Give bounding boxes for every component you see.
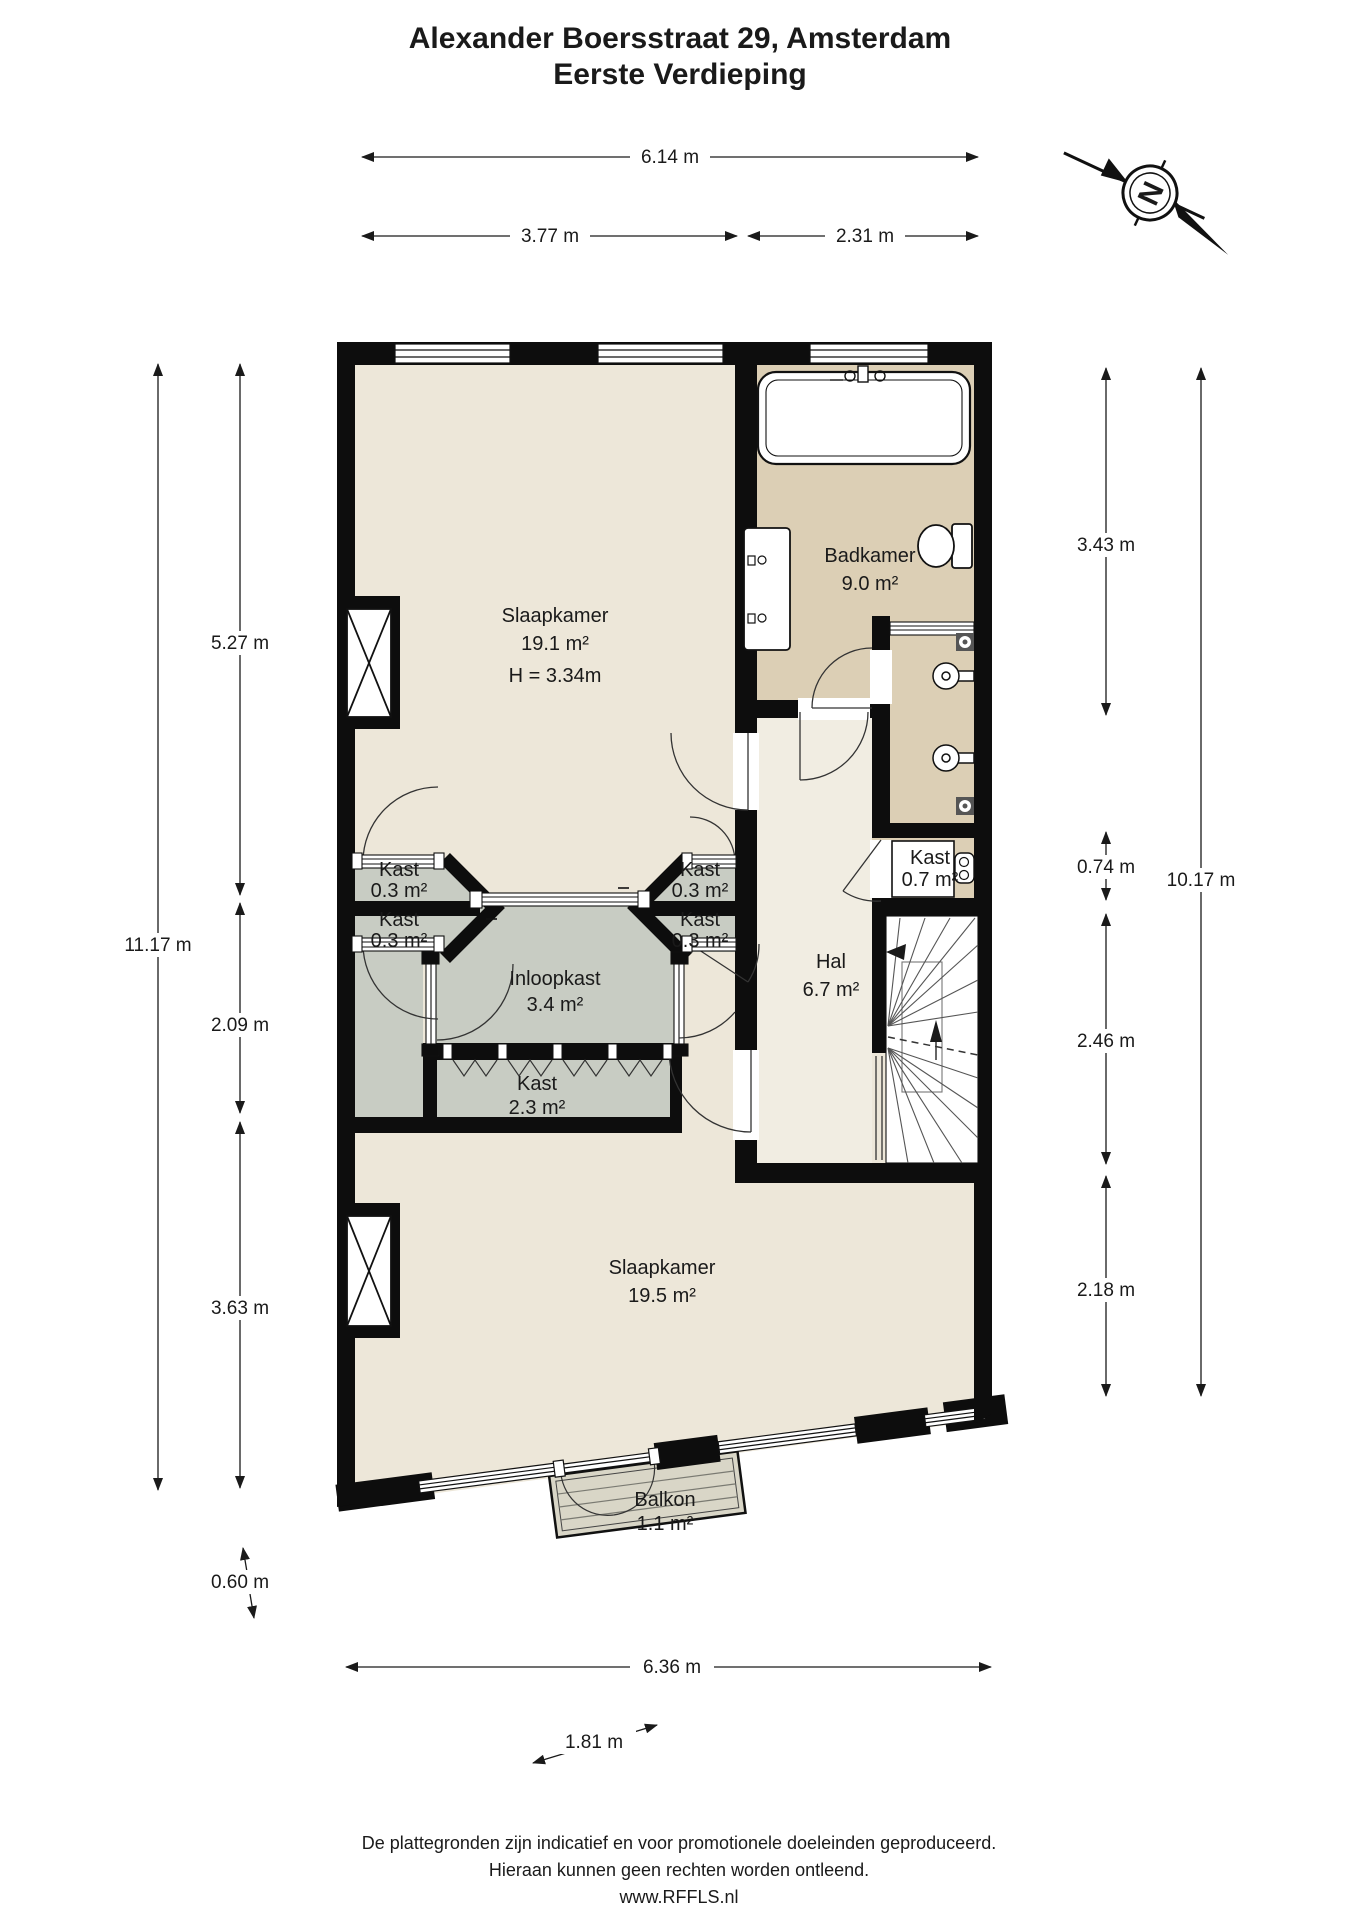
room-badkamer-name: Badkamer: [824, 545, 915, 567]
compass-icon: N: [1049, 120, 1253, 266]
room-balkon-name: Balkon: [634, 1489, 695, 1511]
footer-line1: De plattegronden zijn indicatief en voor…: [362, 1833, 996, 1853]
dim-left-top: 5.27 m: [211, 633, 269, 654]
dim-right-total: 10.17 m: [1167, 870, 1236, 891]
room-kast-cv-area: 0.7 m²: [902, 869, 959, 891]
dim-right-bed: 2.18 m: [1077, 1280, 1135, 1301]
stairs: [886, 916, 978, 1163]
dim-balcony-width: 1.81 m: [565, 1732, 623, 1753]
room-slaapkamer2-name: Slaapkamer: [609, 1257, 716, 1279]
room-kast-rb-area: 0.3 m²: [672, 930, 729, 952]
top-windows: [395, 344, 928, 363]
dim-left-bottom: 3.63 m: [211, 1298, 269, 1319]
room-kast-lt-area: 0.3 m²: [371, 880, 428, 902]
floor-plan-page: Alexander Boersstraat 29, Amsterdam Eers…: [0, 0, 1358, 1920]
footer-line2: Hieraan kunnen geen rechten worden ontle…: [489, 1860, 869, 1880]
dim-right-bath: 3.43 m: [1077, 535, 1135, 556]
room-balkon-area: 1.1 m²: [637, 1513, 694, 1535]
room-kast-groot-name: Kast: [517, 1073, 557, 1095]
room-hal-area: 6.7 m²: [803, 979, 860, 1001]
room-slaapkamer1-name: Slaapkamer: [502, 605, 609, 627]
footer-website: www.RFFLS.nl: [618, 1887, 738, 1907]
room-kast-rt-name: Kast: [680, 859, 720, 881]
room-kast-rt-area: 0.3 m²: [672, 880, 729, 902]
page-subtitle: Eerste Verdieping: [553, 58, 806, 91]
dim-top-left: 3.77 m: [521, 226, 579, 247]
page-title: Alexander Boersstraat 29, Amsterdam: [409, 22, 951, 55]
bathtub-icon: [758, 366, 970, 464]
dim-left-mid: 2.09 m: [211, 1015, 269, 1036]
dim-right-stairs: 2.46 m: [1077, 1031, 1135, 1052]
dim-bottom-total: 6.36 m: [643, 1657, 701, 1678]
dim-top-total: 6.14 m: [641, 147, 699, 168]
room-slaapkamer1-area: 19.1 m²: [521, 633, 589, 655]
room-kast-groot-area: 2.3 m²: [509, 1097, 566, 1119]
floor-plan: Alexander Boersstraat 29, Amsterdam Eers…: [0, 0, 1358, 1920]
vanity-icon: [744, 528, 790, 650]
footer: De plattegronden zijn indicatief en voor…: [362, 1833, 996, 1907]
room-kast-rb-name: Kast: [680, 909, 720, 931]
dim-left-total: 11.17 m: [124, 935, 191, 956]
dim-balcony-depth: 0.60 m: [211, 1572, 269, 1593]
dim-right-kast: 0.74 m: [1077, 857, 1135, 878]
room-inloopkast-name: Inloopkast: [509, 968, 601, 990]
room-inloopkast-area: 3.4 m²: [527, 994, 584, 1016]
room-kast-lb-name: Kast: [379, 909, 419, 931]
room-slaapkamer1-height: H = 3.34m: [509, 665, 602, 687]
room-slaapkamer2-area: 19.5 m²: [628, 1285, 696, 1307]
room-kast-lb-area: 0.3 m²: [371, 930, 428, 952]
room-badkamer-area: 9.0 m²: [842, 573, 899, 595]
toilet-icon: [918, 524, 972, 568]
room-kast-lt-name: Kast: [379, 859, 419, 881]
dim-top-right: 2.31 m: [836, 226, 894, 247]
room-kast-cv-name: Kast: [910, 847, 950, 869]
room-hal-name: Hal: [816, 951, 846, 973]
